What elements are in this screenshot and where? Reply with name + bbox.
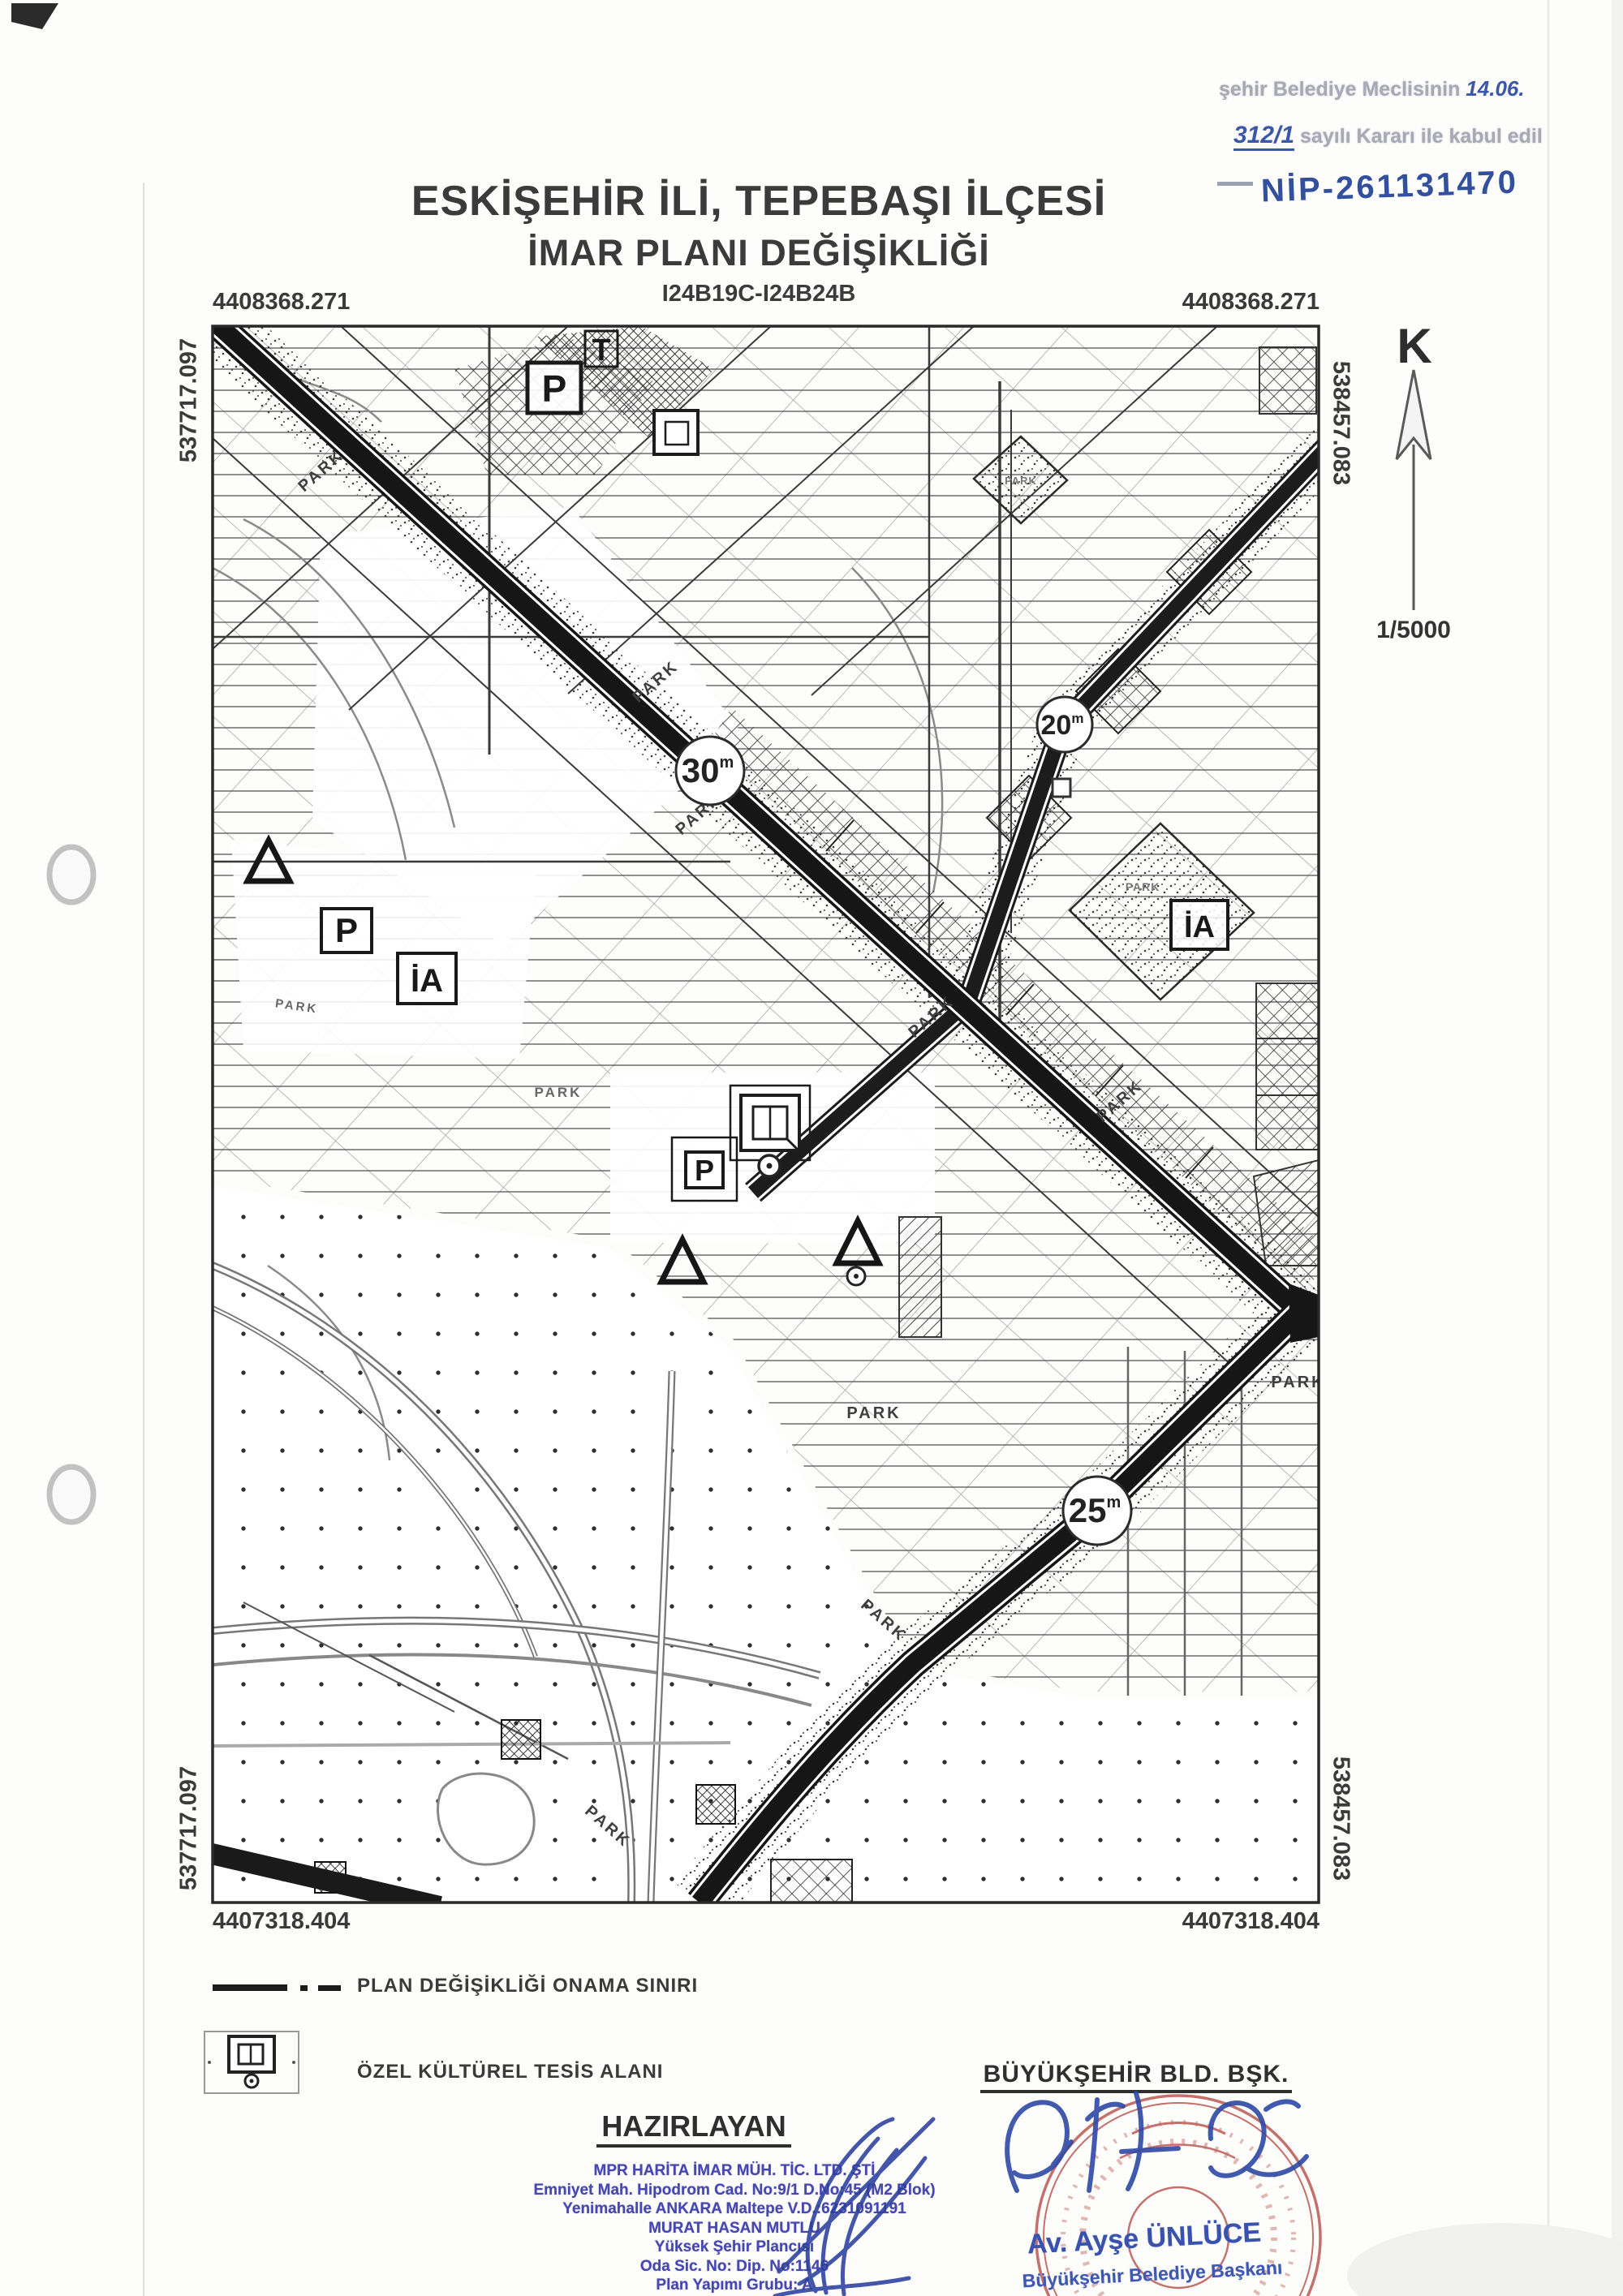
hole-punch: [50, 847, 93, 902]
trafo-label: T: [592, 333, 610, 368]
plan-title: ESKİŞEHİR İLİ, TEPEBAŞI İLÇESİ İMAR PLAN…: [243, 177, 1274, 307]
preparer-line: Plan Yapımı Grubu: A: [491, 2276, 978, 2295]
municipality-heading: BÜYÜKŞEHİR BLD. BŞK.: [933, 2061, 1339, 2088]
approval-stamp-text2: sayılı Kararı ile kabul edil: [1300, 125, 1543, 148]
ia-label: İA: [1184, 910, 1215, 944]
parking-label: P: [695, 1154, 714, 1187]
council-approval-number-line: 312/1 sayılı Kararı ile kabul edil: [1233, 122, 1543, 149]
coord-east-bottom: 538457.083: [1328, 1722, 1354, 1916]
approval-number-handwritten: 312/1: [1233, 122, 1294, 151]
legend-item-boundary: PLAN DEĞİŞİKLİĞİ ONAMA SINIRI: [357, 1975, 698, 1997]
coord-south-right: 4407318.404: [1133, 1908, 1319, 1935]
ia-label: İA: [411, 963, 443, 999]
prepared-by-heading: HAZIRLAYAN: [532, 2109, 856, 2143]
preparer-stamp: MPR HARİTA İMAR MÜH. TİC. LTD. ŞTİ Emniy…: [491, 2161, 978, 2295]
svg-text:PARK: PARK: [846, 1404, 901, 1422]
hole-punch: [50, 1467, 93, 1522]
legend-cultural-symbol: [204, 2032, 299, 2093]
preparer-line: MURAT HASAN MUTLU: [491, 2219, 978, 2238]
coord-east-top: 538457.083: [1328, 326, 1354, 521]
svg-text:PARK: PARK: [1005, 475, 1037, 487]
approval-stamp-text: şehir Belediye Meclisinin: [1219, 78, 1460, 101]
parking-label: P: [542, 368, 567, 410]
preparer-line: Yenimahalle ANKARA Maltepe V.D.:62310911…: [491, 2199, 978, 2219]
preparer-line: MPR HARİTA İMAR MÜH. TİC. LTD. ŞTİ: [491, 2161, 978, 2181]
svg-text:PARK: PARK: [1126, 880, 1160, 893]
legend-boundary-line-sample: [213, 1984, 287, 1991]
north-letter: K: [1386, 318, 1443, 374]
coord-south-left: 4407318.404: [213, 1908, 350, 1935]
map-scale: 1/5000: [1357, 617, 1470, 644]
preparer-line: Oda Sic. No: Dip. No:1146: [491, 2257, 978, 2277]
parking-label: P: [335, 911, 358, 949]
sheet-code: I24B19C-I24B24B: [243, 281, 1274, 307]
preparer-line: Emniyet Mah. Hipodrom Cad. No:9/1 D.No:4…: [491, 2181, 978, 2200]
approval-date-handwritten: 14.06.: [1466, 76, 1524, 101]
title-line2: İMAR PLANI DEĞİŞİKLİĞİ: [243, 232, 1274, 274]
zoning-map: P T P İA İA P PARK PARK PARK PARK PARK P…: [0, 0, 1623, 2296]
council-approval-note: şehir Belediye Meclisinin 14.06.: [1219, 76, 1525, 101]
coord-north-left: 4408368.271: [213, 289, 350, 316]
coord-north-right: 4408368.271: [1133, 289, 1319, 316]
coord-west-bottom: 537717.097: [176, 1731, 203, 1926]
title-line1: ESKİŞEHİR İLİ, TEPEBAŞI İLÇESİ: [243, 177, 1274, 226]
preparer-line: Yüksek Şehir Plancısı: [491, 2238, 978, 2257]
legend-boundary-dash: [318, 1985, 341, 1991]
scanned-zoning-plan-page: { "approval_note": { "stamp_text_1": "şe…: [0, 0, 1623, 2296]
legend-boundary-dot: [300, 1985, 308, 1991]
nip-number-handwritten: NİP-261131470: [1260, 164, 1518, 209]
legend-item-cultural: ÖZEL KÜLTÜREL TESİS ALANI: [357, 2061, 663, 2083]
coord-west-top: 537717.097: [176, 303, 203, 498]
svg-text:PARK: PARK: [535, 1085, 583, 1100]
north-arrow: [1397, 370, 1431, 610]
